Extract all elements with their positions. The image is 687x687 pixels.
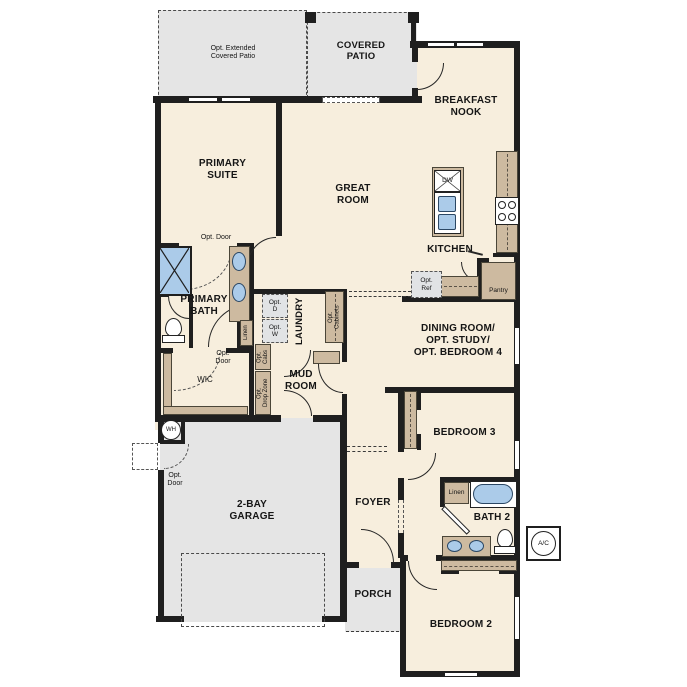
- wall-patio-right: [411, 12, 416, 42]
- opt-door-garage-ext: [132, 443, 158, 470]
- pantry-closet: [481, 262, 516, 300]
- label-great-room: GREAT ROOM: [318, 183, 388, 207]
- window-nook-1: [428, 42, 454, 47]
- label-opt-door-suite: Opt. Door: [191, 234, 241, 242]
- wall-bath2-bedroom2-l: [400, 555, 408, 561]
- garage-door-dashed: [181, 553, 325, 627]
- label-bedroom3: BEDROOM 3: [417, 427, 512, 439]
- wall-foyer-front-l: [345, 562, 359, 568]
- break-dining-1: [349, 291, 411, 292]
- opt-washer: Opt. W: [262, 319, 288, 343]
- break-dining-2: [349, 296, 411, 297]
- bath2-linen-closet: Linen: [444, 482, 469, 504]
- wall-b2closet-stub-r: [499, 571, 517, 574]
- porch-edge-dashed: [346, 631, 399, 632]
- window-bedroom2-right: [514, 597, 520, 639]
- floor-plan: Linen DW WH A/C Opt. Ref Opt. D Opt. W O…: [0, 0, 687, 687]
- wall-garage-right: [340, 418, 347, 616]
- label-opt-door-wic: Opt. Door: [208, 350, 238, 366]
- bath2-tub: [470, 481, 517, 508]
- ac-label: A/C: [538, 540, 549, 547]
- wall-garage-bottom-right: [322, 616, 347, 622]
- opt-d-label: Opt. D: [269, 299, 281, 313]
- kitchen-counter-bottom: [441, 276, 479, 297]
- bath2-toilet-tank: [494, 546, 516, 554]
- wall-nook-left-lower: [412, 88, 418, 102]
- label-opt-extended-patio: Opt. Extended Covered Patio: [186, 45, 280, 61]
- label-opt-door-garage: Opt. Door: [160, 472, 190, 488]
- break-hall-1: [347, 446, 387, 447]
- shower-x-icon: [160, 248, 189, 293]
- label-bath2: BATH 2: [464, 512, 520, 524]
- primary-shower: [158, 246, 192, 296]
- window-primary-suite-1: [189, 97, 217, 102]
- label-foyer: FOYER: [347, 497, 399, 509]
- primary-sink-1: [232, 252, 246, 271]
- patio-sliding-door: [322, 97, 380, 103]
- wic-shelf-left: [163, 353, 172, 413]
- label-primary-linen: Linen: [240, 320, 253, 346]
- label-opt-cabs: Opt. Cabs: [255, 344, 271, 370]
- window-nook-2: [457, 42, 483, 47]
- window-bedroom2-bottom: [445, 672, 477, 677]
- wic-shelf-bottom: [163, 406, 248, 415]
- wall-bedroom2-left: [400, 555, 406, 677]
- bath2-sink-1: [447, 540, 462, 552]
- bath2-sink-2: [469, 540, 484, 552]
- window-primary-suite-2: [222, 97, 250, 102]
- wall-nook-left-upper: [412, 41, 418, 62]
- label-opt-drop-zone: Opt. Drop Zone: [255, 371, 271, 415]
- label-covered-patio: COVERED PATIO: [325, 40, 397, 63]
- opt-dryer: Opt. D: [262, 294, 288, 318]
- label-pantry: Pantry: [481, 287, 516, 294]
- primary-toilet-tank: [162, 335, 185, 343]
- wall-mud-bottom-l: [249, 415, 281, 422]
- label-opt-cabinets: Opt. Cabinets: [326, 292, 343, 342]
- label-dining: DINING ROOM/ OPT. STUDY/ OPT. BEDROOM 4: [398, 323, 518, 359]
- dishwasher: DW: [434, 170, 461, 192]
- bedroom3-closet: [404, 391, 417, 449]
- wall-counter-stub: [493, 253, 518, 257]
- label-breakfast-nook: BREAKFAST NOOK: [423, 95, 509, 119]
- wall-garage-bottom-left: [156, 616, 184, 622]
- mud-bench: [313, 351, 340, 364]
- wall-garage-left-lower: [158, 470, 164, 622]
- water-heater: WH: [161, 420, 181, 440]
- wall-b2closet-stub-l: [441, 571, 459, 574]
- opt-ref-label: Opt. Ref: [420, 277, 432, 291]
- break-hall-2: [347, 451, 387, 452]
- patio-post-left: [305, 12, 316, 23]
- label-garage: 2-BAY GARAGE: [220, 499, 284, 523]
- ac-unit: A/C: [526, 526, 561, 561]
- dw-x-icon: [435, 171, 460, 191]
- bedroom2-closet: [441, 560, 517, 571]
- opt-w-label: Opt. W: [269, 324, 281, 338]
- label-porch: PORCH: [346, 589, 400, 601]
- opt-refrigerator: Opt. Ref: [411, 271, 442, 298]
- wall-wh-right: [181, 418, 185, 442]
- label-mud-room: MUD ROOM: [272, 369, 330, 393]
- wall-b3closet-stub-t: [417, 390, 421, 410]
- wall-suite-great: [276, 96, 282, 236]
- wh-label: WH: [166, 427, 176, 434]
- label-bedroom2: BEDROOM 2: [413, 619, 509, 631]
- bath2-linen-label: Linen: [449, 489, 465, 496]
- window-bedroom3: [514, 441, 520, 469]
- label-primary-suite: PRIMARY SUITE: [180, 158, 265, 182]
- label-wic: WIC: [181, 375, 229, 385]
- label-laundry: LAUNDRY: [291, 295, 308, 347]
- label-primary-bath: PRIMARY BATH: [170, 294, 238, 318]
- island-sink: [434, 192, 461, 234]
- cooktop: [495, 197, 519, 225]
